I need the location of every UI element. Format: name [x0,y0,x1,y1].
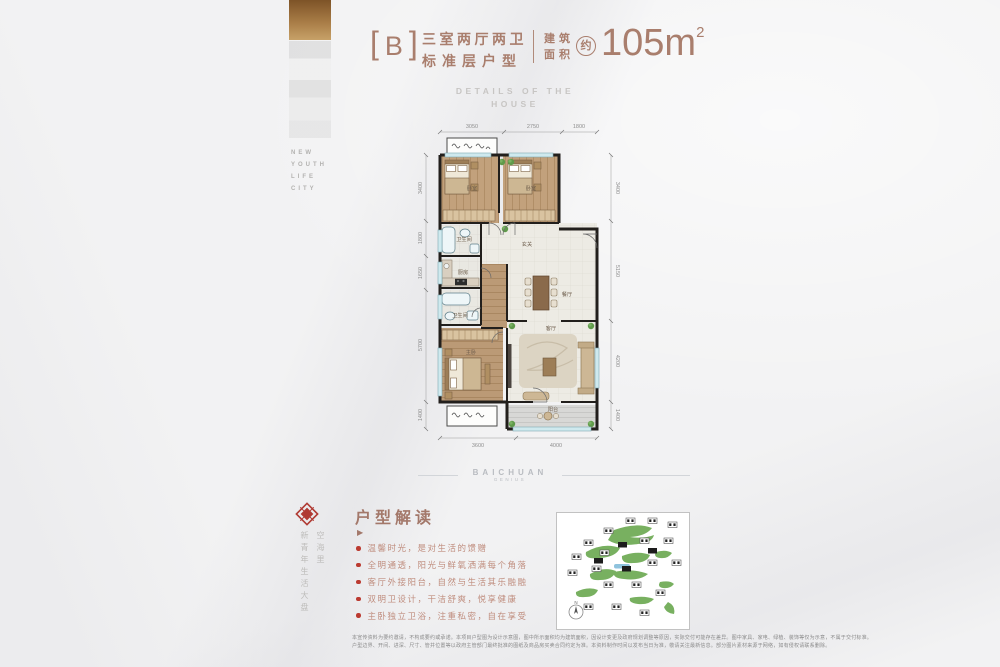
dim-label: 3400 [614,182,620,194]
dim-label: 1800 [418,232,424,244]
project-name-vertical: 空海里 [315,531,326,577]
interpretation-heading: 户型解读 [355,504,435,528]
room-label-bath2: 卫生间 [452,311,468,319]
disclaimer: 本宣传资料为要约邀请，不构成要约或承诺。本项目户型图为设计示意图，图中所示面积均… [352,634,964,650]
project-slogan-vertical: 新青年生活大盘 [299,531,310,641]
approx-circle: 约 [576,36,596,56]
bullet-text: 双明卫设计，干洁舒爽，悦享健康 [368,593,518,605]
area-number: 105m [601,22,696,64]
subtitle-line1: DETAILS OF THE [430,85,600,98]
brand-seal-icon [295,502,319,526]
unit-titles: 三室两厅两卫 标准层户型 [422,29,527,71]
dim-label: 3600 [472,443,484,449]
bracket-left: [ [370,25,381,61]
room-label-master: 主卧 [466,348,476,356]
area-label: 建筑 面积 [544,31,574,63]
subtitle-line2: HOUSE [430,98,600,111]
triangle-marker-icon: ▶ [357,528,363,537]
dim-label: 3400 [418,182,424,194]
bullet-item: 客厅外接阳台，自然与生活其乐融融 [356,574,528,591]
equipment-platform-bottom [447,406,497,426]
dim-label: 1650 [418,267,424,279]
dim-label: 4200 [614,355,620,367]
dim-label: 1400 [614,409,620,421]
bullet-text: 全明通透，阳光与鲜氧洒满每个角落 [368,559,528,571]
bullet-item: 主卧独立卫浴，注重私密，自在享受 [356,607,528,624]
divider-line [418,475,458,476]
disclaimer-line2: 户型边界、开间、进深、尺寸、管井位置等以政府主管部门最终批准的图纸及商品房买卖合… [352,642,964,650]
bullet-dot-icon [356,613,361,618]
area-exponent: 2 [696,24,704,41]
room-label-bedroom2: 卧室 [526,184,536,192]
dim-label: 3050 [466,124,478,130]
subtitle: DETAILS OF THE HOUSE [430,85,600,111]
hall-floor [481,264,507,328]
room-label-foyer: 玄关 [522,240,532,248]
dim-label: 4000 [550,443,562,449]
room-label-living: 客厅 [546,324,556,332]
area-label-top: 建筑 [544,31,574,47]
dimension-bottom: 3600 4000 [438,436,599,449]
caption-word: LIFE [291,171,327,183]
unit-title-line1: 三室两厅两卫 [422,29,527,49]
divider-line [562,475,690,476]
bullet-text: 客厅外接阳台，自然与生活其乐融融 [368,576,528,588]
left-strip-caption: NEW YOUTH LIFE CITY [291,147,327,195]
compass-n-label: N [574,600,577,605]
bullet-dot-icon [356,563,361,568]
equipment-platform-top [447,138,497,155]
room-label-balcony: 阳台 [548,405,558,413]
dim-label: 2750 [527,124,539,130]
dim-label: 1400 [418,409,424,421]
bullet-text: 主卧独立卫浴，注重私密，自在享受 [368,610,528,622]
bullet-dot-icon [356,546,361,551]
bullet-item: 温馨时光，是对生活的馈赠 [356,540,528,557]
left-strip-photo-faded [289,41,331,138]
room-label-bath1: 卫生间 [456,235,472,243]
unit-letter: B [381,31,409,61]
sofa [581,346,594,390]
dining-furniture [525,276,557,310]
brand-subname: GENIUS [458,477,562,482]
bullet-text: 温馨时光，是对生活的馈赠 [368,542,488,554]
tv-cabinet [508,344,512,388]
caption-word: CITY [291,183,327,195]
unit-title-line2: 标准层户型 [422,51,527,71]
room-label-bedroom1: 卧室 [467,184,477,192]
bullet-item: 双明卫设计，干洁舒爽，悦享健康 [356,590,528,607]
interpretation-bullets: 温馨时光，是对生活的馈赠 全明通透，阳光与鲜氧洒满每个角落 客厅外接阳台，自然与… [356,540,528,624]
dimension-left: 3400 1800 1650 5700 1400 [418,153,428,431]
site-plan: N [556,512,690,630]
brand-watermark: BAICHUAN GENIUS [418,468,690,482]
bracket-right: ] [409,25,420,61]
room-label-kitchen: 厨房 [458,268,468,276]
disclaimer-line1: 本宣传资料为要约邀请，不构成要约或承诺。本项目户型图为设计示意图，图中所示面积均… [352,634,964,642]
area-label-bottom: 面积 [544,47,574,63]
dim-label: 5700 [418,339,424,351]
brand-name: BAICHUAN [458,468,562,477]
floor-plan: 3050 2750 1800 3600 4000 3400 5150 4200 … [415,118,650,458]
unit-badge: [B] [370,26,420,63]
caption-word: NEW [291,147,327,159]
bullet-item: 全明通透，阳光与鲜氧洒满每个角落 [356,557,528,574]
left-strip-photo-top [289,0,331,40]
header-divider [533,30,534,63]
area-value: 105m2 [601,22,704,65]
coffee-table [543,358,556,376]
dimension-right: 3400 5150 4200 1400 [609,153,620,431]
caption-word: YOUTH [291,159,327,171]
bullet-dot-icon [356,597,361,602]
dimension-top: 3050 2750 1800 [438,124,599,134]
room-label-dining: 餐厅 [562,290,572,298]
dim-label: 5150 [614,265,620,277]
bullet-dot-icon [356,580,361,585]
dim-label: 1800 [573,124,585,130]
